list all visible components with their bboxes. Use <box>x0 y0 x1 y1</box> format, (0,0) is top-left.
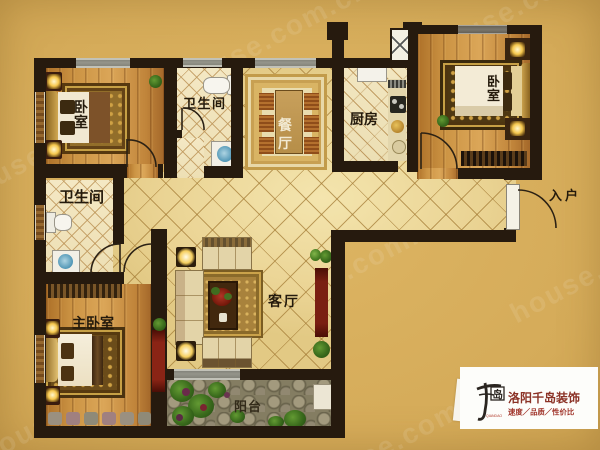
svg-text:QIANDAO: QIANDAO <box>486 414 502 418</box>
svg-text:岛: 岛 <box>493 388 504 401</box>
